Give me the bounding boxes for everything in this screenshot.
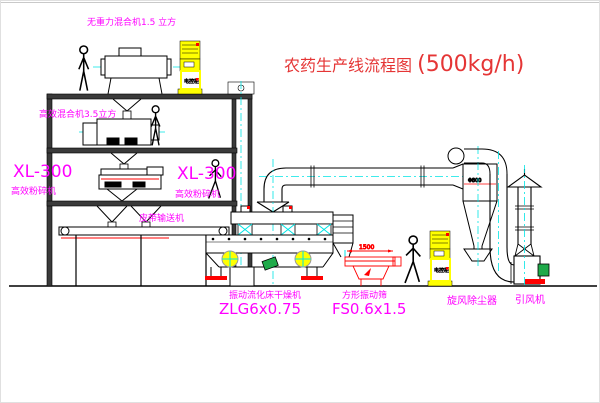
page-title-name: 农药生产线流程图 [284,56,412,75]
dryer-foot-pad [301,276,323,280]
indicator-light [196,43,199,46]
label-mill-mid-name: 高效粉碎机 [175,188,220,200]
label-mill-left-name: 高效粉碎机 [11,185,56,197]
elevator-boot [230,267,254,286]
fan-motor [538,264,549,276]
flow-diagram-page: 电控柜 [0,0,600,403]
person-figure-ground [405,236,420,283]
label-mill-mid-model: XL-300 [177,164,236,184]
pulverizer-machine [99,167,163,201]
gravity-mixer-machine [93,48,185,94]
page-title: 农药生产线流程图 (500kg/h) [284,52,524,77]
discharge-funnel-1 [113,99,141,119]
control-cabinet-right: 电控柜 [428,231,452,286]
discharge-funnel-2 [111,153,137,169]
indicator-light [446,233,449,236]
process-flow-drawing: 电控柜 [1,1,600,403]
fluid-bed-dryer-drawing [205,206,353,280]
dryer-foot-pad [205,276,227,280]
screen-dimension-text: 1500 [359,244,374,251]
label-high-eff-mixer: 高效混合机3.5立方 [39,108,116,120]
vibration-motor [262,257,278,270]
label-screen-model: FS0.6x1.5 [332,300,406,318]
induced-draft-fan-drawing [490,151,549,284]
page-title-capacity: (500kg/h) [417,52,524,77]
label-belt-conveyor: 皮带输送机 [139,212,184,224]
vibrating-screen-drawing: 1500 [345,244,401,286]
label-dryer-model: ZLG6x0.75 [219,300,301,318]
person-figure-top-floor [79,46,89,91]
control-cabinet-top: 电控柜 [178,41,202,94]
label-cyclone: 旋风除尘器 [447,294,497,307]
label-fan: 引风机 [515,293,545,306]
label-mill-left-model: XL-300 [13,162,72,182]
cyclone-dimension-text: Φ800 [468,178,481,184]
label-gravity-mixer: 无重力混合机1.5 立方 [87,16,176,28]
fan-base-pad [525,279,545,284]
